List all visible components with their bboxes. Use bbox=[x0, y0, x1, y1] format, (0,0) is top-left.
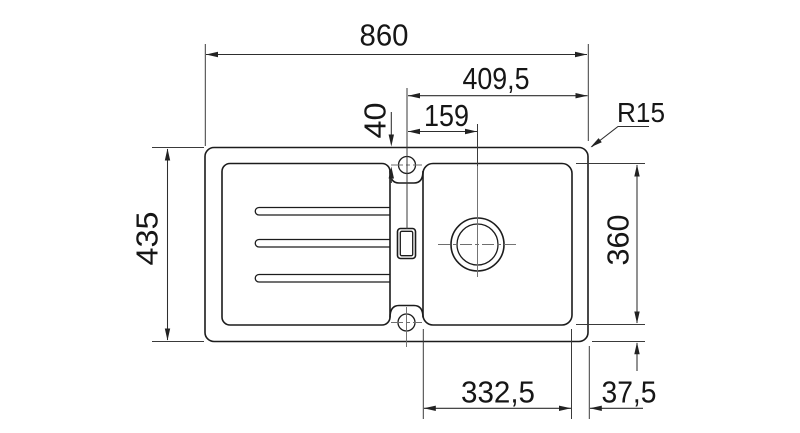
drainboard-groove-1 bbox=[255, 208, 389, 216]
arrowhead-left bbox=[206, 52, 218, 57]
arrowhead-left bbox=[408, 93, 420, 98]
arrowhead-down bbox=[165, 329, 170, 341]
dimension-label-tap-to-right-edge: 409,5 bbox=[463, 61, 530, 96]
dimension-label-overall-width: 860 bbox=[360, 18, 409, 53]
dimension-bowl-depth: 360 bbox=[576, 164, 645, 325]
arrowhead-left bbox=[590, 406, 602, 411]
arrowhead-right bbox=[576, 93, 588, 98]
sink-outline-group bbox=[205, 148, 588, 342]
dimension-label-bowl-width: 332,5 bbox=[461, 375, 535, 410]
arrowhead-left bbox=[424, 406, 436, 411]
dimension-label-tap-offset: 40 bbox=[358, 103, 393, 139]
dimension-label-bowl-to-right-edge: 37,5 bbox=[602, 375, 657, 410]
arrowhead-leader bbox=[591, 138, 602, 147]
dimension-overall-width: 860 bbox=[205, 18, 588, 147]
arrowhead-right bbox=[575, 52, 587, 57]
sink-dimension-drawing: 860 409,5 159 40 R15 435 bbox=[0, 0, 800, 433]
dimension-label-overall-depth: 435 bbox=[130, 212, 165, 266]
arrowhead-up bbox=[634, 165, 639, 177]
sink-outer-rim bbox=[205, 148, 588, 342]
dimension-tap-to-right-edge: 409,5 bbox=[408, 61, 588, 98]
dimension-label-tap-to-drain: 159 bbox=[424, 98, 469, 133]
dimension-label-bowl-depth: 360 bbox=[601, 215, 636, 266]
dimension-tap-to-drain: 159 bbox=[408, 98, 478, 166]
arrowhead-right bbox=[559, 406, 571, 411]
dimension-corner-radius: R15 bbox=[591, 97, 666, 147]
drainboard-panel bbox=[222, 164, 390, 326]
dimension-label-corner-radius: R15 bbox=[617, 97, 665, 128]
arrowhead-left bbox=[408, 129, 420, 134]
dimension-overall-depth: 435 bbox=[130, 148, 205, 342]
dimension-bowl-to-right-edge: 37,5 bbox=[589, 342, 656, 420]
drainboard-groove-2 bbox=[255, 240, 389, 248]
dimension-tap-offset-from-top: 40 bbox=[358, 103, 395, 184]
leader-line bbox=[592, 127, 650, 148]
arrowhead-up bbox=[634, 342, 639, 354]
dimension-bowl-width: 332,5 bbox=[423, 329, 571, 419]
drainboard-groove-3 bbox=[255, 275, 389, 283]
overflow-hole-inner bbox=[400, 231, 412, 255]
arrowhead-up bbox=[165, 149, 170, 161]
arrowhead-down bbox=[634, 312, 639, 324]
